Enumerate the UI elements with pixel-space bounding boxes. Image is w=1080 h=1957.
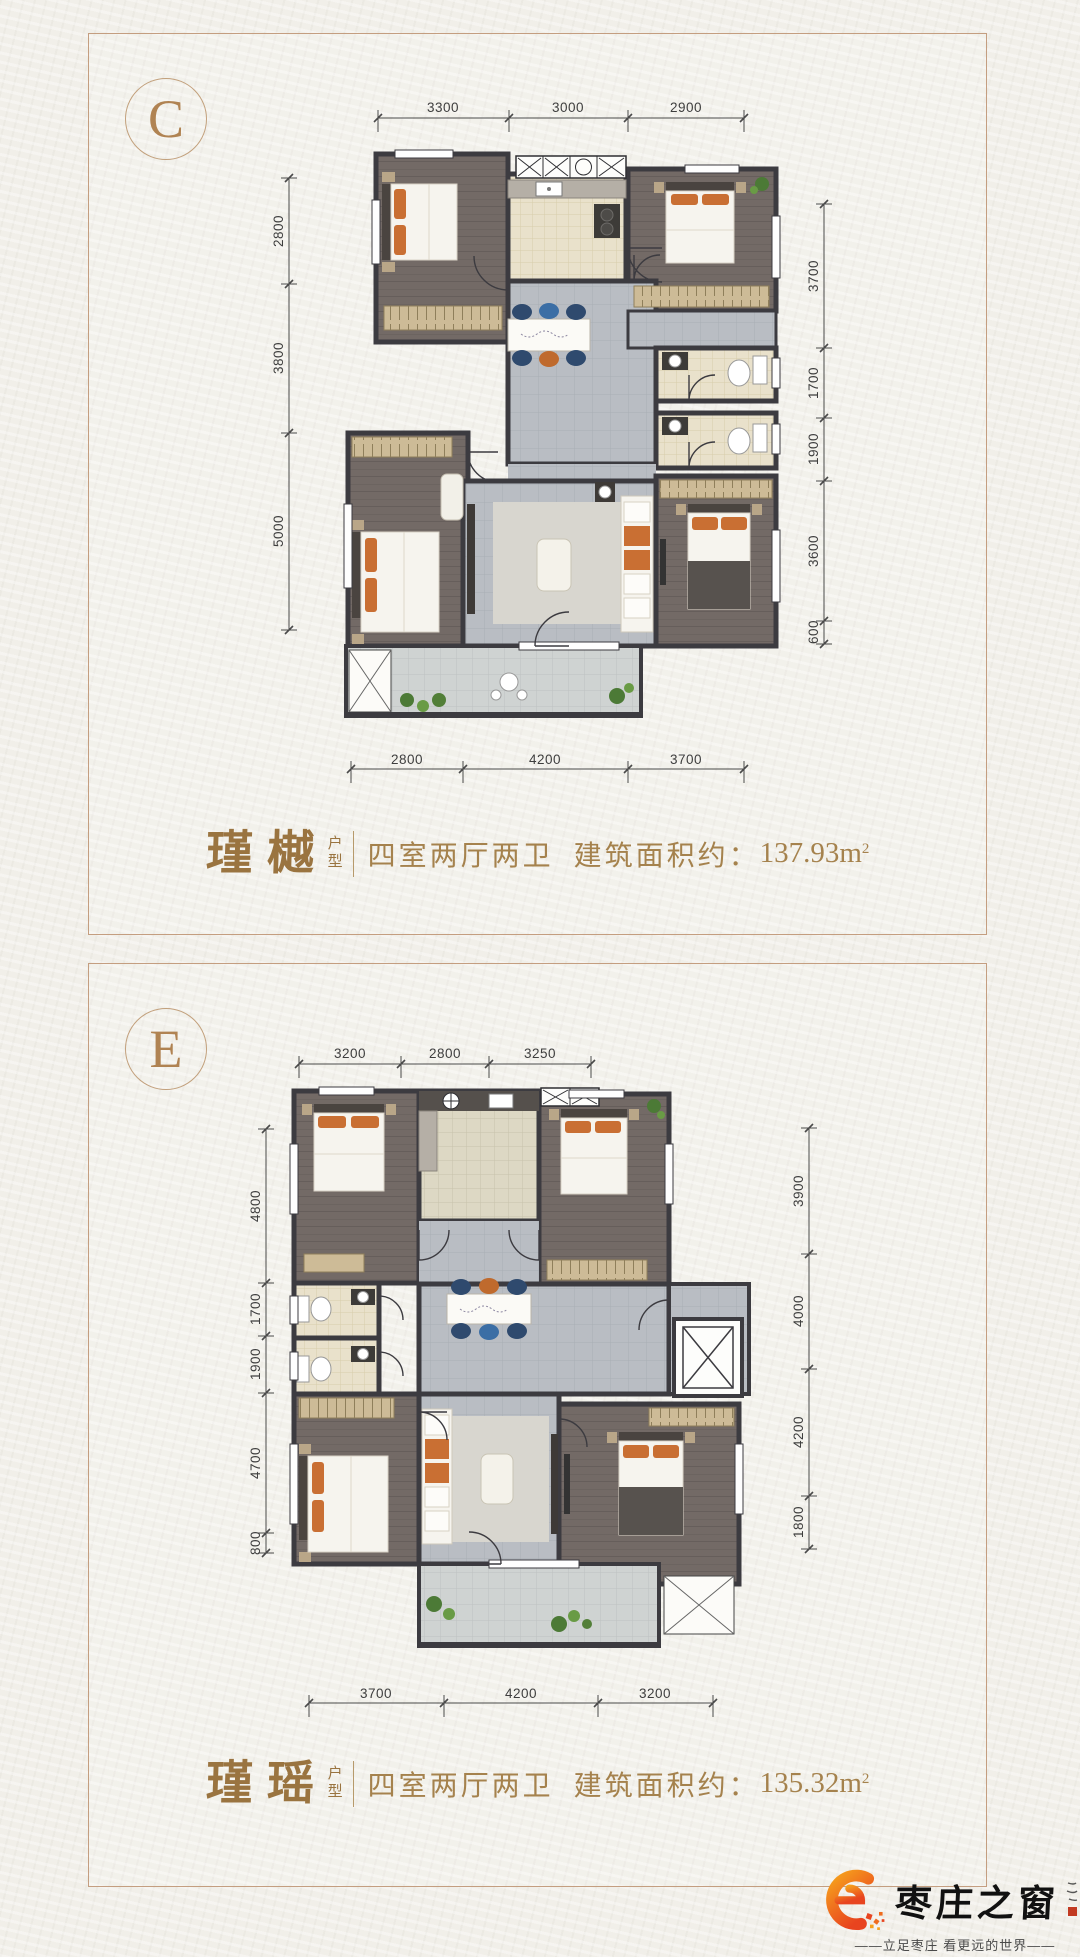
svg-text:2900: 2900 [670,100,702,115]
svg-text:2800: 2800 [391,752,423,767]
dimension-chain-right: 3700 1700 1900 3600 600 [806,200,832,648]
floorplan-c-drawing [344,150,780,716]
balcony [419,1564,659,1646]
wardrobe-master [649,1408,734,1426]
caption-divider [353,1761,354,1807]
dining-set [447,1278,531,1340]
svg-text:2800: 2800 [271,215,286,247]
living-room-furniture [422,1409,558,1544]
utility-symbol-band [516,156,626,178]
svg-text:1900: 1900 [248,1348,263,1380]
svg-text:3800: 3800 [271,342,286,374]
dimension-chain-right: 3900 4000 4200 1800 [791,1124,817,1553]
floorplan-card-c: C [88,33,987,935]
svg-text:1800: 1800 [791,1506,806,1538]
caption-c: 瑾樾 户 型 四室两厅两卫 建筑面积约： 137.93m2 [89,830,986,877]
svg-text:1700: 1700 [248,1293,263,1325]
corridor [628,311,776,348]
chaise [441,474,463,520]
svg-text:800: 800 [248,1531,263,1555]
bed-bottom-left [299,1444,388,1562]
dimension-chain-left: 4800 1700 1900 4700 800 [248,1125,274,1557]
dimension-chain-top: 3200 2800 3250 [295,1046,595,1078]
svg-text:3200: 3200 [639,1686,671,1701]
brochure-page: C [0,0,1080,1957]
svg-text:3000: 3000 [552,100,584,115]
bed-bottom-left [352,520,439,644]
dimension-chain-top: 3300 3000 2900 [374,100,748,132]
caption-e: 瑾瑶 户 型 四室两厅两卫 建筑面积约： 135.32m2 [89,1760,986,1807]
svg-text:4200: 4200 [791,1416,806,1448]
svg-text:5000: 5000 [271,515,286,547]
wardrobe-bottom-left [299,1398,394,1418]
elevator [674,1319,742,1396]
unit-suffix: 户 型 [328,1766,343,1801]
living-room-furniture [467,482,653,632]
unit-name: 瑾樾 [205,830,329,877]
brand-name: 枣庄之窗 [894,1885,1060,1922]
bed-top-right [654,182,746,263]
wardrobe-top-right [547,1260,647,1280]
svg-text:4000: 4000 [791,1295,806,1327]
svg-text:2800: 2800 [429,1046,461,1061]
site-logo-footer: 枣庄之窗 ——立足枣庄 看更远的世界—— [770,1874,1080,1957]
svg-text:3700: 3700 [806,260,821,292]
layout-description: 四室两厅两卫 建筑面积约： [368,1764,760,1804]
floorplan-e-drawing [290,1087,749,1646]
wardrobe-master [660,480,772,498]
artist-seal [1064,1879,1080,1927]
area-value: 137.93m2 [760,837,870,870]
wardrobe-bottom-left [352,437,452,457]
svg-text:3700: 3700 [670,752,702,767]
floorplan-card-e: E [88,963,987,1887]
area-value: 135.32m2 [760,1767,870,1800]
e-swirl-logo-icon [813,1867,891,1939]
dining-set [508,303,590,367]
wardrobe-top-right [634,286,769,307]
layout-description: 四室两厅两卫 建筑面积约： [368,834,760,874]
svg-text:1700: 1700 [806,367,821,399]
svg-text:3300: 3300 [427,100,459,115]
svg-text:3200: 3200 [334,1046,366,1061]
dimension-chain-bottom: 3700 4200 3200 [305,1686,717,1717]
svg-text:1900: 1900 [806,433,821,465]
svg-text:3900: 3900 [791,1175,806,1207]
floorplan-e-svg: 3200 2800 3250 4800 1700 1900 4700 800 [89,964,986,1886]
svg-text:600: 600 [806,620,821,644]
wardrobe-top-left [384,306,502,330]
svg-text:4200: 4200 [529,752,561,767]
dimension-chain-left: 2800 3800 5000 [271,174,297,634]
dimension-chain-bottom: 2800 4200 3700 [347,752,748,783]
svg-text:3250: 3250 [524,1046,556,1061]
bed-top-left [382,172,457,272]
floorplan-c-svg: 3300 3000 2900 2800 3800 5000 [89,34,986,934]
unit-name: 瑾瑶 [205,1760,329,1807]
svg-text:3700: 3700 [360,1686,392,1701]
svg-text:3600: 3600 [806,535,821,567]
svg-text:4200: 4200 [505,1686,537,1701]
svg-text:4700: 4700 [248,1447,263,1479]
svg-text:4800: 4800 [248,1190,263,1222]
caption-divider [353,831,354,877]
unit-suffix: 户 型 [328,836,343,871]
